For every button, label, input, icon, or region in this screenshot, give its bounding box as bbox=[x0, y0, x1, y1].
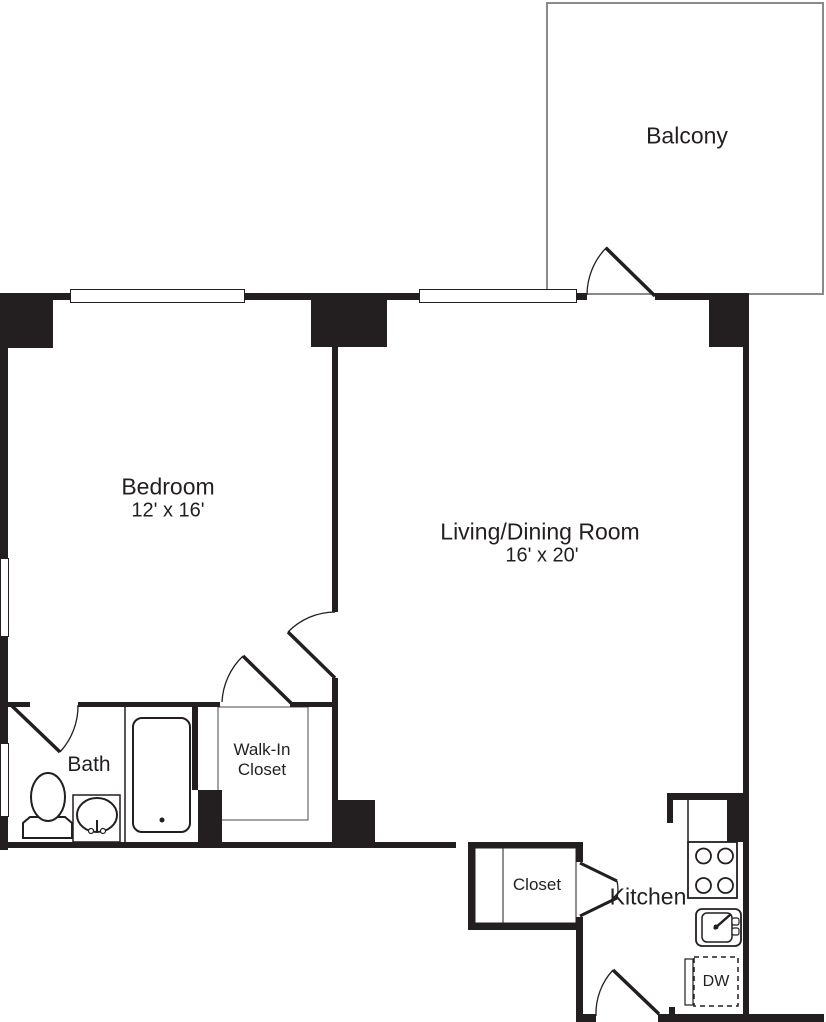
closet-label: Closet bbox=[513, 875, 561, 895]
bedroom-dimensions: 12' x 16' bbox=[131, 500, 204, 523]
kitchen-label: Kitchen bbox=[610, 884, 687, 911]
walk-in-closet-label-line1: Walk-In bbox=[234, 740, 291, 760]
bath-door bbox=[12, 705, 78, 752]
walk-in-closet-label: Walk-In Closet bbox=[234, 740, 291, 780]
bedroom-door bbox=[288, 612, 335, 678]
entry-door bbox=[596, 970, 659, 1016]
floor-plan: Balcony Bedroom 12' x 16' Living/Dining … bbox=[0, 0, 826, 1022]
doors-layer bbox=[0, 0, 826, 1022]
walk-in-closet-door bbox=[222, 656, 291, 703]
balcony-label: Balcony bbox=[646, 123, 728, 150]
bedroom-label: Bedroom bbox=[121, 474, 214, 501]
bath-label: Bath bbox=[67, 753, 110, 777]
living-dining-label: Living/Dining Room bbox=[440, 519, 639, 546]
dishwasher-label: DW bbox=[703, 973, 730, 991]
walk-in-closet-label-line2: Closet bbox=[234, 760, 291, 780]
living-dining-dimensions: 16' x 20' bbox=[505, 545, 578, 568]
balcony-door bbox=[587, 247, 655, 296]
